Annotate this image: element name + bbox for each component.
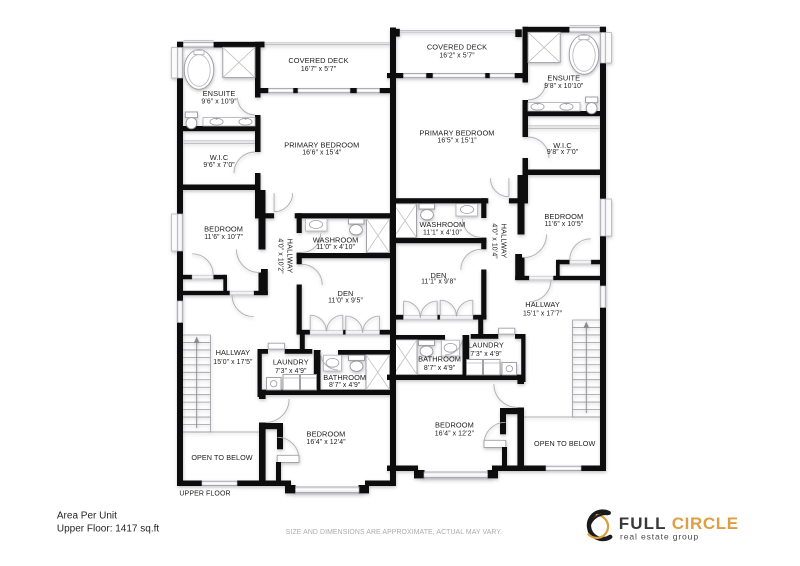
svg-text:8’7” x 4’9”: 8’7” x 4’9” [424, 365, 456, 372]
svg-text:16’4” x 12’2”: 16’4” x 12’2” [435, 431, 475, 438]
svg-text:FULL: FULL [619, 514, 667, 533]
svg-text:UPPER FLOOR: UPPER FLOOR [179, 490, 230, 497]
svg-text:15’1” x 17’7”: 15’1” x 17’7” [523, 311, 563, 318]
svg-text:ENSUITE: ENSUITE [203, 89, 236, 98]
svg-text:HALLWAY: HALLWAY [500, 224, 509, 259]
svg-text:HALLWAY: HALLWAY [525, 300, 560, 309]
svg-text:9’6” x 7’0”: 9’6” x 7’0” [203, 162, 235, 169]
svg-text:11’6” x 10’7”: 11’6” x 10’7” [204, 234, 243, 241]
svg-text:11’0” x 4’10”: 11’0” x 4’10” [316, 244, 355, 251]
svg-text:7’3” x 4’9”: 7’3” x 4’9” [470, 351, 502, 358]
svg-text:11’0” x 9’5”: 11’0” x 9’5” [328, 298, 363, 305]
svg-text:CIRCLE: CIRCLE [672, 514, 739, 533]
svg-text:11’6” x 10’5”: 11’6” x 10’5” [544, 221, 583, 228]
svg-text:9’8” x 10’10”: 9’8” x 10’10” [544, 83, 584, 90]
svg-text:PRIMARY BEDROOM: PRIMARY BEDROOM [284, 141, 359, 150]
svg-text:BATHROOM: BATHROOM [323, 373, 366, 382]
svg-text:OPEN TO BELOW: OPEN TO BELOW [534, 439, 595, 448]
svg-text:Upper Floor: 1417 sq.ft: Upper Floor: 1417 sq.ft [57, 524, 159, 535]
svg-text:WASHROOM: WASHROOM [420, 220, 466, 229]
svg-text:COVERED DECK: COVERED DECK [427, 43, 487, 52]
svg-text:11’1” x 9’8”: 11’1” x 9’8” [421, 279, 456, 286]
svg-text:BEDROOM: BEDROOM [204, 225, 243, 234]
svg-text:HALLWAY: HALLWAY [216, 348, 251, 357]
svg-text:9’6” x 10’9”: 9’6” x 10’9” [201, 99, 237, 106]
svg-text:OPEN TO BELOW: OPEN TO BELOW [191, 453, 252, 462]
svg-text:COVERED DECK: COVERED DECK [288, 56, 348, 65]
svg-text:BATHROOM: BATHROOM [418, 355, 461, 364]
svg-text:SIZE AND DIMENSIONS ARE APPROX: SIZE AND DIMENSIONS ARE APPROXIMATE, ACT… [286, 529, 502, 536]
svg-text:8’7” x 4’9”: 8’7” x 4’9” [329, 382, 361, 389]
svg-text:4’0” x 10’2”: 4’0” x 10’2” [277, 238, 284, 274]
svg-text:9’8” x 7’0”: 9’8” x 7’0” [547, 149, 579, 156]
svg-text:BEDROOM: BEDROOM [544, 212, 583, 221]
svg-text:16’5” x 15’1”: 16’5” x 15’1” [437, 138, 477, 145]
svg-text:15’0” x 17’5”: 15’0” x 17’5” [213, 359, 253, 366]
svg-text:16’2” x 5’7”: 16’2” x 5’7” [439, 52, 475, 59]
svg-text:LAUNDRY: LAUNDRY [468, 341, 504, 350]
svg-text:16’7” x 5’7”: 16’7” x 5’7” [301, 66, 337, 73]
svg-text:LAUNDRY: LAUNDRY [273, 357, 309, 366]
svg-text:16’6” x 15’4”: 16’6” x 15’4” [302, 150, 342, 157]
svg-text:PRIMARY BEDROOM: PRIMARY BEDROOM [419, 129, 494, 138]
svg-text:7’3” x 4’9”: 7’3” x 4’9” [275, 368, 307, 375]
svg-text:4’0” x 10’4”: 4’0” x 10’4” [491, 223, 498, 259]
svg-text:Area Per Unit: Area Per Unit [57, 511, 117, 522]
svg-text:real estate group: real estate group [620, 531, 699, 541]
svg-text:BEDROOM: BEDROOM [435, 421, 474, 430]
svg-text:HALLWAY: HALLWAY [286, 239, 295, 274]
svg-text:BEDROOM: BEDROOM [307, 430, 346, 439]
svg-text:ENSUITE: ENSUITE [547, 74, 580, 83]
svg-text:11’1” x 4’10”: 11’1” x 4’10” [423, 230, 462, 237]
svg-text:16’4” x 12’4”: 16’4” x 12’4” [306, 439, 346, 446]
